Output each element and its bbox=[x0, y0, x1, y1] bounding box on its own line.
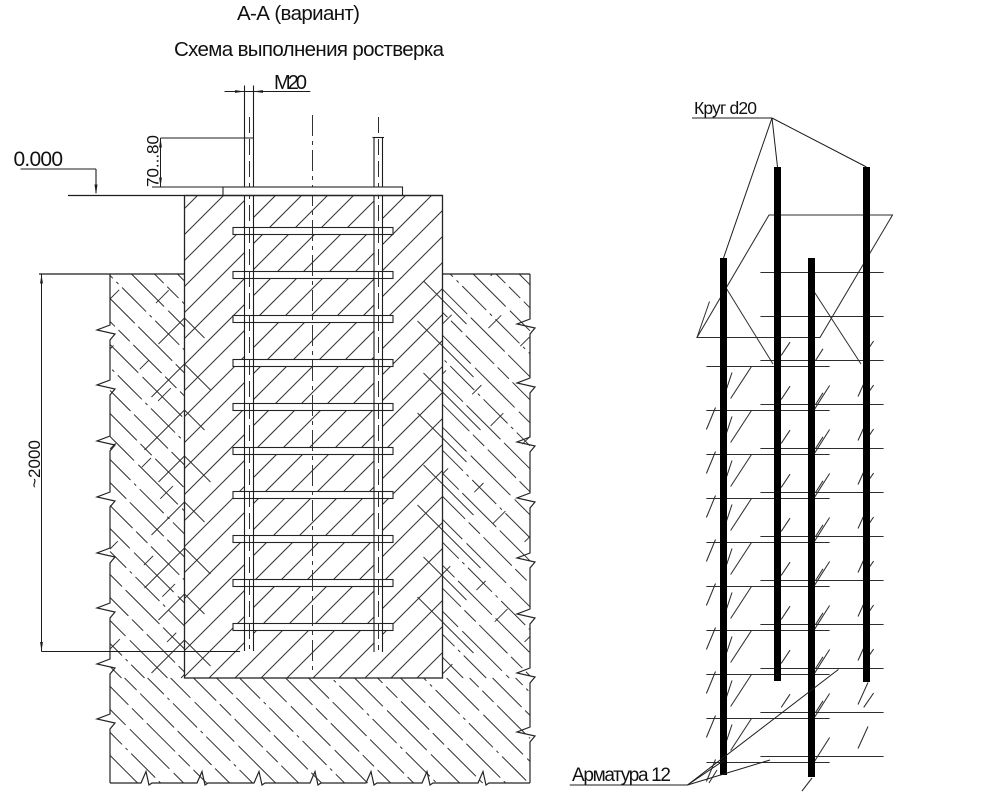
svg-text:Схема выполнения ростверка: Схема выполнения ростверка bbox=[174, 38, 445, 61]
svg-text:М20: М20 bbox=[274, 72, 307, 94]
svg-text:А-А (вариант): А-А (вариант) bbox=[237, 2, 360, 25]
svg-text:Арматура 12: Арматура 12 bbox=[572, 765, 671, 786]
svg-text:Круг d20: Круг d20 bbox=[694, 98, 757, 118]
svg-text:0.000: 0.000 bbox=[14, 148, 64, 171]
